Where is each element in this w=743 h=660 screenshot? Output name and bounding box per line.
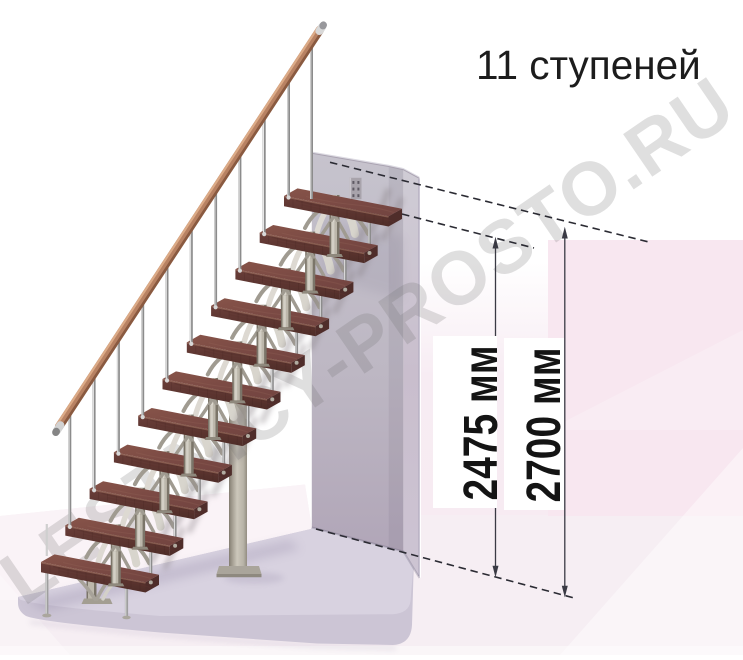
svg-text:2700 мм: 2700 мм [518, 348, 571, 503]
svg-text:11 ступеней: 11 ступеней [476, 42, 701, 88]
svg-text:2475 мм: 2475 мм [455, 346, 508, 501]
